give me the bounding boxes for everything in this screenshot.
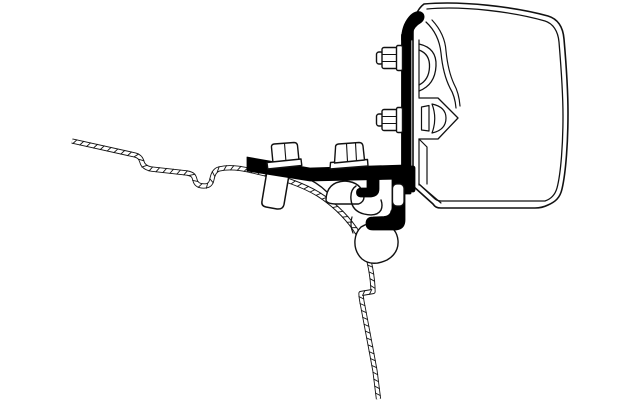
- plate-nut-lower-hex: [382, 110, 398, 131]
- plate-nut-upper-hex: [382, 48, 398, 69]
- product-illustration: [0, 0, 640, 400]
- arm-flange-nut-hex: [335, 143, 365, 164]
- plate-nut-lower-flange: [397, 108, 403, 133]
- rail-lip: [393, 184, 405, 206]
- diagram-svg: [0, 0, 640, 400]
- plate-nut-upper-flange: [397, 46, 403, 71]
- case-channel-slot: [422, 106, 430, 132]
